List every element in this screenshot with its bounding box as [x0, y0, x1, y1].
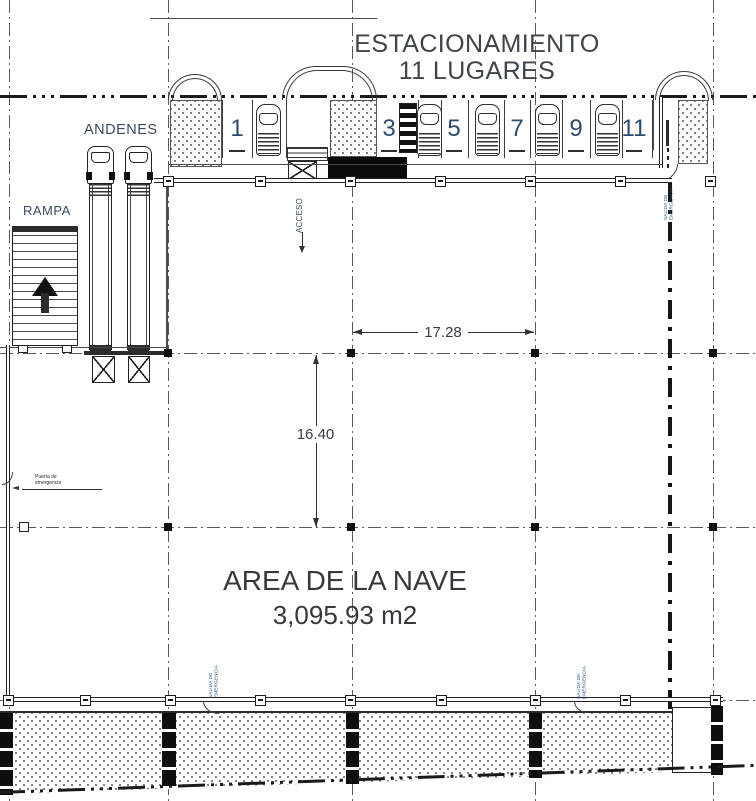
- ramp-arrow-shaft: [41, 293, 49, 313]
- stall-number: 9: [561, 115, 591, 143]
- truck-trailer-icon: [89, 184, 112, 350]
- dimension-value-depth: 16.40: [291, 426, 340, 443]
- acceso-label: ACCESO: [295, 189, 304, 233]
- column-marker: [80, 695, 91, 706]
- bottom-sidewalk-hatch: [0, 713, 672, 796]
- door-swing-arc: [2, 472, 13, 485]
- building-top-wall: [154, 178, 672, 183]
- column-marker: [19, 522, 29, 532]
- dimension-arrow: [525, 329, 534, 335]
- entrance-canopy-arc: [655, 71, 713, 100]
- column-marker-filled: [531, 349, 539, 357]
- car-icon: [535, 104, 560, 156]
- emergency-door-leader: [22, 489, 102, 490]
- dock-leveler-x: [92, 356, 115, 383]
- acceso-arrow-shaft: [302, 232, 303, 247]
- rampa-label: RAMPA: [23, 203, 71, 218]
- grid-line-vertical: [713, 0, 714, 801]
- column-marker: [615, 176, 626, 187]
- emergency-exit-label: SALIDA DE EMERGENCIA: [208, 656, 219, 698]
- column-marker: [705, 176, 716, 187]
- truck-trailer-icon: [127, 184, 150, 350]
- column-marker: [525, 176, 536, 187]
- strip-right-bay: [672, 707, 712, 773]
- column-marker: [530, 695, 541, 706]
- building-bottom-wall: [6, 697, 723, 702]
- column-marker-filled: [347, 523, 355, 531]
- column-marker-filled: [531, 523, 539, 531]
- stall-divider: [252, 100, 253, 158]
- dock-wall: [166, 181, 168, 353]
- stall-number: 5: [439, 115, 469, 143]
- wall-pillar: [162, 713, 176, 789]
- dimension-arrow: [313, 355, 319, 364]
- column-marker: [165, 695, 176, 706]
- column-marker: [3, 695, 14, 706]
- column-marker: [436, 695, 447, 706]
- parking-title-line2: 11 LUGARES: [312, 57, 642, 86]
- car-icon: [256, 104, 281, 156]
- emergency-door-arrow: [12, 486, 19, 490]
- column-marker-filled: [709, 349, 717, 357]
- acceso-arrow-icon: [299, 246, 305, 253]
- dimension-value-width: 17.28: [418, 324, 468, 341]
- strip-top-line: [0, 711, 723, 713]
- dimension-arrow: [313, 518, 319, 527]
- wall-pillar: [346, 713, 359, 784]
- emergency-door-label: Puerta de emergencia: [35, 474, 77, 486]
- floor-plan: 1 3 5 7 9 11: [0, 0, 756, 801]
- entrance-canopy-arc: [168, 74, 222, 100]
- stall-number: 7: [502, 115, 532, 143]
- column-marker: [620, 695, 631, 706]
- column-marker-filled: [164, 523, 172, 531]
- sidewalk-hatch: [170, 100, 222, 167]
- sidewalk-hatch: [330, 100, 377, 157]
- nave-area-value: 3,095.93 m2: [185, 600, 505, 631]
- parking-title-line1: ESTACIONAMIENTO: [312, 30, 642, 59]
- stall-number-underline: [509, 150, 525, 152]
- ramp-top-band: [12, 226, 78, 232]
- column-marker: [345, 176, 356, 187]
- column-marker: [710, 695, 721, 706]
- stall-number-underline: [229, 150, 245, 152]
- stall-number-underline: [446, 150, 462, 152]
- stall-number: 11: [619, 115, 649, 143]
- car-icon: [417, 104, 442, 156]
- column-marker-filled: [709, 523, 717, 531]
- dock-leveler-x: [128, 356, 150, 383]
- dock-edge: [84, 351, 164, 355]
- stall-number-underline: [381, 150, 397, 152]
- sidewalk-hatch: [678, 100, 708, 164]
- column-marker: [435, 176, 446, 187]
- column-marker: [163, 176, 174, 187]
- column-marker-filled: [164, 349, 172, 357]
- stall-number: 1: [222, 115, 252, 143]
- ramp-stripes: [287, 147, 328, 161]
- emergency-exit-label: SALIDA DE EMERGENCIA: [663, 184, 674, 220]
- grid-line-vertical: [168, 0, 169, 801]
- car-icon: [475, 104, 500, 156]
- car-icon: [595, 104, 620, 156]
- column-marker: [255, 176, 266, 187]
- gate-post-line: [653, 98, 654, 150]
- nave-area-title: AREA DE LA NAVE: [185, 565, 505, 597]
- wall-pillar: [529, 713, 542, 778]
- emergency-exit-label: SALIDA DE EMERGENCIA: [576, 661, 587, 699]
- truck-cab-icon: [87, 146, 114, 184]
- fence-line: [150, 18, 377, 19]
- property-line-top: [0, 95, 756, 98]
- stall-number-underline: [626, 150, 642, 152]
- gate-leaf: [666, 120, 669, 146]
- stair-icon: [399, 103, 417, 153]
- stall-number-underline: [568, 150, 584, 152]
- dimension-arrow: [353, 329, 362, 335]
- truck-cab-icon: [125, 146, 152, 184]
- wall-pillar: [0, 713, 13, 795]
- sidewalk-line: [168, 164, 662, 165]
- column-marker: [345, 695, 356, 706]
- grid-line-horizontal: [0, 527, 756, 528]
- property-line-right: [668, 183, 672, 712]
- building-left-wall: [6, 345, 10, 702]
- andenes-label: ANDENES: [84, 122, 158, 138]
- gate-wall: [659, 97, 663, 168]
- column-marker-filled: [347, 349, 355, 357]
- column-marker: [255, 695, 266, 706]
